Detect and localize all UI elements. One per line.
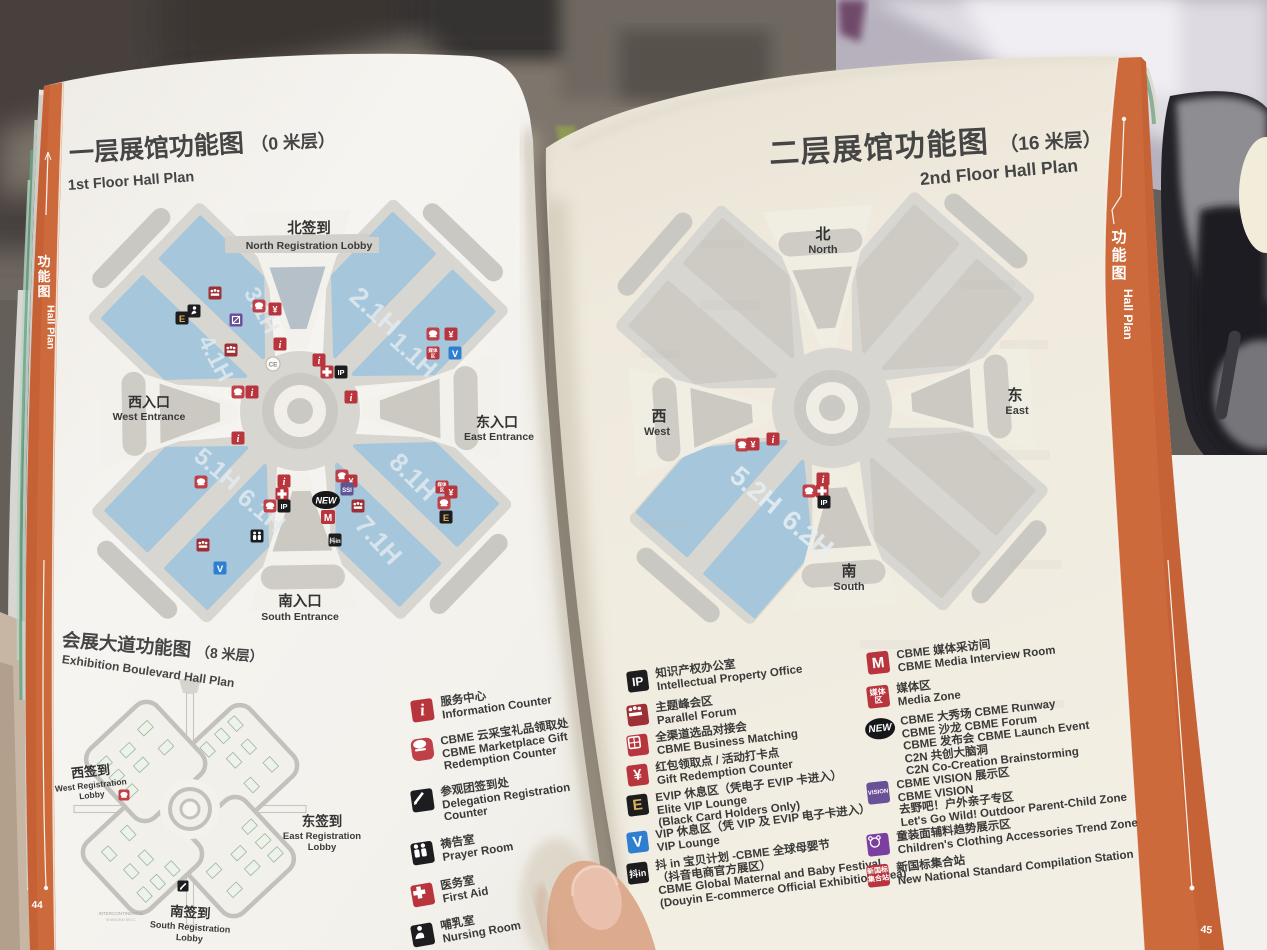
svg-text:Lobby: Lobby xyxy=(79,789,106,802)
svg-text:East: East xyxy=(1005,405,1029,417)
svg-text:能: 能 xyxy=(1111,246,1126,264)
svg-text:Lobby: Lobby xyxy=(176,932,204,944)
svg-text:南: 南 xyxy=(841,562,856,580)
svg-text:44: 44 xyxy=(31,900,43,911)
svg-text:图: 图 xyxy=(37,284,50,299)
svg-text:North: North xyxy=(808,244,838,256)
svg-text:East Entrance: East Entrance xyxy=(464,431,534,443)
svg-text:东签到: 东签到 xyxy=(302,813,343,829)
svg-text:South Entrance: South Entrance xyxy=(261,611,339,623)
svg-text:45: 45 xyxy=(1200,923,1213,936)
svg-text:Hall Plan: Hall Plan xyxy=(45,305,57,349)
svg-text:Lobby: Lobby xyxy=(308,842,337,853)
svg-text:西入口: 西入口 xyxy=(128,394,170,410)
svg-text:南签到: 南签到 xyxy=(170,903,212,922)
svg-text:西: 西 xyxy=(651,408,666,425)
svg-text:North Registration Lobby: North Registration Lobby xyxy=(246,240,373,252)
svg-text:功: 功 xyxy=(37,254,50,269)
svg-text:图: 图 xyxy=(1111,265,1126,282)
svg-text:功: 功 xyxy=(1111,229,1126,246)
svg-text:Hall Plan: Hall Plan xyxy=(1121,289,1135,340)
svg-text:South: South xyxy=(833,581,864,593)
svg-text:能: 能 xyxy=(37,269,50,284)
svg-text:West Entrance: West Entrance xyxy=(113,411,186,423)
svg-text:北签到: 北签到 xyxy=(287,219,331,237)
svg-text:SHANGHAI NECC: SHANGHAI NECC xyxy=(106,918,136,922)
svg-text:南入口: 南入口 xyxy=(278,592,322,610)
svg-text:East Registration: East Registration xyxy=(283,831,361,842)
svg-text:东入口: 东入口 xyxy=(476,414,518,430)
svg-text:West: West xyxy=(644,426,670,438)
svg-text:INTERCONTINENTAL: INTERCONTINENTAL xyxy=(99,911,144,916)
svg-text:东: 东 xyxy=(1007,386,1022,404)
svg-text:北: 北 xyxy=(815,226,830,243)
